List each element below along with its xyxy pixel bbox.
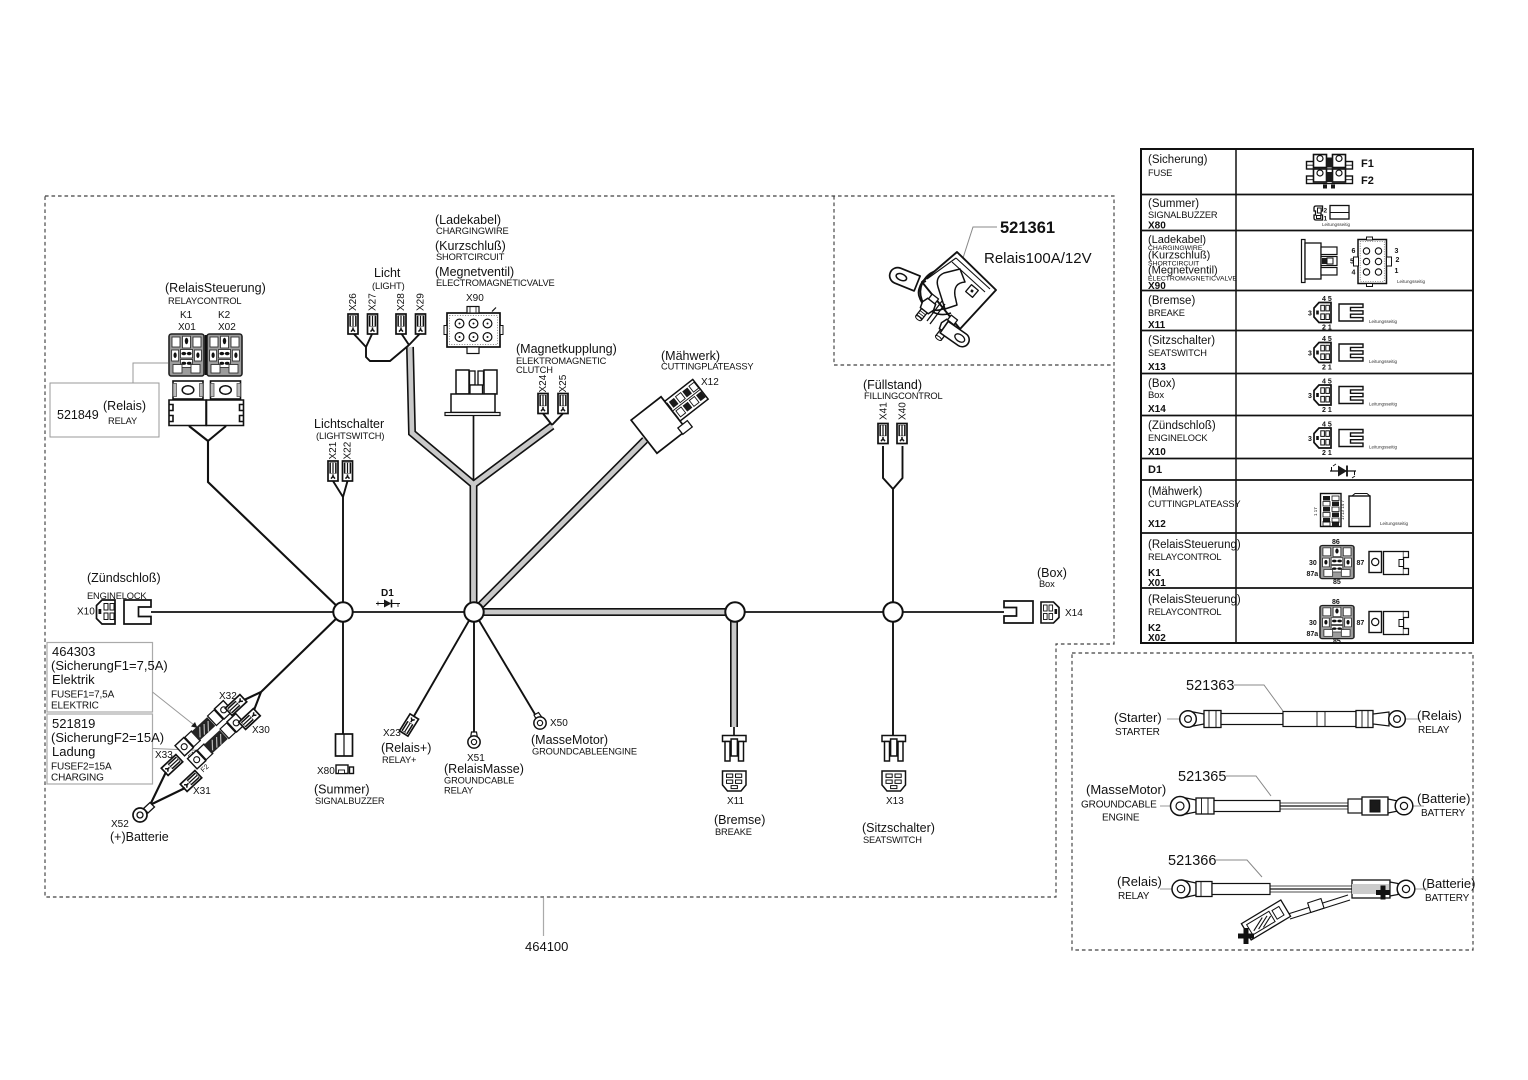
svg-text:2 1: 2 1	[1322, 450, 1332, 457]
svg-text:RELAY: RELAY	[1118, 891, 1150, 902]
svg-text:86: 86	[1332, 599, 1340, 606]
svg-text:X33: X33	[155, 750, 173, 761]
svg-text:(SicherungF2=15A): (SicherungF2=15A)	[51, 730, 164, 745]
svg-text:Leitungsseitig: Leitungsseitig	[1369, 359, 1398, 364]
svg-text:(Zündschloß): (Zündschloß)	[1148, 420, 1216, 432]
svg-text:(+)Batterie: (+)Batterie	[110, 830, 169, 844]
svg-text:Leitungsseitig: Leitungsseitig	[1380, 521, 1409, 526]
svg-text:(Bremse): (Bremse)	[714, 813, 765, 827]
svg-text:ENGINE: ENGINE	[1102, 813, 1140, 824]
svg-text:BATTERY: BATTERY	[1425, 893, 1470, 904]
svg-text:Lichtschalter: Lichtschalter	[314, 417, 384, 431]
svg-text:CHARGINGWIRE: CHARGINGWIRE	[436, 226, 509, 236]
svg-text:Relais100A/12V: Relais100A/12V	[984, 250, 1092, 267]
svg-text:(Sitzschalter): (Sitzschalter)	[862, 821, 935, 835]
svg-text:3: 3	[1308, 351, 1312, 358]
svg-text:87a: 87a	[1307, 571, 1319, 578]
svg-text:FUSE: FUSE	[1148, 168, 1172, 178]
svg-text:4 5: 4 5	[1322, 422, 1332, 429]
svg-text:CHARGING: CHARGING	[51, 773, 104, 784]
svg-text:86: 86	[1332, 539, 1340, 546]
svg-text:X80: X80	[1148, 221, 1166, 232]
svg-text:X02: X02	[218, 322, 236, 333]
svg-text:RELAYCONTROL: RELAYCONTROL	[1148, 607, 1221, 617]
svg-text:4 5: 4 5	[1322, 336, 1332, 343]
svg-text:X14: X14	[1148, 404, 1166, 415]
svg-text:Leitungsseitig: Leitungsseitig	[1369, 445, 1398, 450]
svg-text:SEATSWITCH: SEATSWITCH	[1148, 348, 1207, 358]
svg-text:SIGNALBUZZER: SIGNALBUZZER	[1148, 210, 1218, 220]
svg-text:(Bremse): (Bremse)	[1148, 295, 1195, 307]
svg-text:GROUNDCABLE: GROUNDCABLE	[1081, 800, 1157, 811]
svg-text:Leitungsseitig: Leitungsseitig	[1397, 279, 1426, 284]
svg-text:X80: X80	[317, 766, 335, 777]
svg-text:521363: 521363	[1186, 678, 1234, 694]
svg-text:(Starter): (Starter)	[1114, 710, 1162, 725]
svg-text:RELAYCONTROL: RELAYCONTROL	[168, 296, 241, 306]
svg-text:(Kurzschluß): (Kurzschluß)	[435, 239, 506, 253]
svg-text:30: 30	[1309, 560, 1317, 567]
svg-text:BATTERY: BATTERY	[1421, 808, 1466, 819]
svg-text:X29: X29	[416, 293, 427, 311]
svg-text:(Megnetventil): (Megnetventil)	[435, 265, 514, 279]
svg-text:BREAKE: BREAKE	[1148, 308, 1185, 318]
svg-text:87a: 87a	[1307, 631, 1319, 638]
svg-text:3: 3	[1308, 393, 1312, 400]
svg-text:D1: D1	[1148, 464, 1162, 476]
svg-text:F2: F2	[1361, 175, 1374, 187]
svg-text:X31: X31	[193, 786, 211, 797]
svg-text:K2: K2	[218, 310, 231, 321]
svg-text:2: 2	[1324, 208, 1328, 215]
svg-text:X13: X13	[1148, 362, 1166, 373]
svg-text:X12: X12	[701, 377, 719, 388]
svg-text:X12: X12	[1148, 519, 1166, 530]
svg-text:(LIGHT): (LIGHT)	[372, 281, 405, 291]
svg-text:464303: 464303	[52, 644, 95, 659]
svg-text:ELECTROMAGNETICVALVE: ELECTROMAGNETICVALVE	[436, 278, 555, 288]
svg-text:(Mähwerk): (Mähwerk)	[1148, 486, 1202, 498]
svg-text:(RelaisSteuerung): (RelaisSteuerung)	[1148, 594, 1241, 606]
svg-text:ELEKTRIC: ELEKTRIC	[51, 701, 99, 712]
svg-text:(RelaisSteuerung): (RelaisSteuerung)	[165, 281, 266, 295]
svg-text:(Relais): (Relais)	[1417, 708, 1462, 723]
svg-text:Leitungsseitig: Leitungsseitig	[1369, 402, 1398, 407]
svg-text:2 1: 2 1	[1322, 407, 1332, 414]
svg-text:87: 87	[1357, 560, 1365, 567]
svg-text:(Relais+): (Relais+)	[381, 741, 431, 755]
svg-text:X40: X40	[898, 402, 909, 420]
svg-text:(Relais): (Relais)	[1117, 874, 1162, 889]
svg-text:RELAY: RELAY	[1418, 725, 1450, 736]
svg-text:(Zündschloß): (Zündschloß)	[87, 571, 161, 585]
svg-text:Box: Box	[1039, 579, 1055, 589]
svg-text:FUSEF1=7,5A: FUSEF1=7,5A	[51, 690, 115, 701]
svg-text:X10: X10	[1148, 447, 1166, 458]
svg-text:(Sitzschalter): (Sitzschalter)	[1148, 335, 1215, 347]
svg-text:RELAY+: RELAY+	[382, 755, 416, 765]
svg-text:(Batterie): (Batterie)	[1422, 876, 1475, 891]
svg-text:2 1: 2 1	[1322, 325, 1332, 332]
svg-text:1 17: 1 17	[1313, 507, 1318, 516]
svg-text:X24: X24	[538, 374, 549, 392]
svg-text:X14: X14	[1065, 608, 1083, 619]
svg-text:D1: D1	[381, 588, 394, 599]
svg-text:(Box): (Box)	[1037, 566, 1067, 580]
svg-text:Leitungsseitig: Leitungsseitig	[1369, 319, 1398, 324]
svg-text:(Magnetkupplung): (Magnetkupplung)	[516, 342, 617, 356]
svg-text:Leitungsseitig: Leitungsseitig	[1322, 222, 1351, 227]
svg-text:X26: X26	[348, 293, 359, 311]
svg-text:464100: 464100	[525, 939, 568, 954]
svg-text:(RelaisSteuerung): (RelaisSteuerung)	[1148, 539, 1241, 551]
svg-text:GROUNDCABLE: GROUNDCABLE	[444, 776, 514, 786]
svg-text:Elektrik: Elektrik	[52, 672, 95, 687]
svg-text:SEATSWITCH: SEATSWITCH	[863, 835, 922, 845]
svg-text:SHORTCIRCUIT: SHORTCIRCUIT	[436, 252, 505, 262]
svg-text:521365: 521365	[1178, 769, 1226, 785]
svg-text:CUTTINGPLATEASSY: CUTTINGPLATEASSY	[1148, 499, 1240, 509]
svg-text:(MasseMotor): (MasseMotor)	[531, 733, 608, 747]
svg-text:X27: X27	[368, 293, 379, 311]
svg-text:Box: Box	[1148, 390, 1164, 401]
svg-text:X02: X02	[1148, 633, 1166, 644]
svg-text:ENGINELOCK: ENGINELOCK	[1148, 433, 1208, 443]
svg-text:521366: 521366	[1168, 853, 1216, 869]
svg-text:521361: 521361	[1000, 219, 1055, 237]
svg-text:RELAY: RELAY	[108, 416, 137, 426]
svg-text:85: 85	[1333, 639, 1341, 646]
svg-text:FILLINGCONTROL: FILLINGCONTROL	[864, 391, 943, 401]
svg-text:CUTTINGPLATEASSY: CUTTINGPLATEASSY	[661, 362, 753, 372]
svg-text:CLUTCH: CLUTCH	[516, 365, 553, 375]
svg-text:(Füllstand): (Füllstand)	[863, 378, 922, 392]
svg-text:85: 85	[1333, 579, 1341, 586]
svg-text:2: 2	[1396, 257, 1400, 264]
svg-text:X32: X32	[219, 691, 237, 702]
svg-text:521849: 521849	[57, 408, 99, 422]
svg-text:X28: X28	[396, 293, 407, 311]
svg-text:X25: X25	[558, 374, 569, 392]
svg-text:4 5: 4 5	[1322, 296, 1332, 303]
svg-text:4 5: 4 5	[1322, 379, 1332, 386]
svg-text:X01: X01	[178, 322, 196, 333]
svg-text:X21: X21	[328, 441, 339, 459]
svg-text:1: 1	[1395, 268, 1399, 275]
svg-text:(Summer): (Summer)	[1148, 198, 1199, 210]
svg-text:(Batterie): (Batterie)	[1417, 791, 1470, 806]
svg-text:87: 87	[1357, 620, 1365, 627]
svg-text:(Ladekabel): (Ladekabel)	[435, 213, 501, 227]
svg-text:F1: F1	[1361, 158, 1374, 170]
svg-text:30: 30	[1309, 620, 1317, 627]
svg-text:6: 6	[1352, 248, 1356, 255]
svg-text:2 1: 2 1	[1322, 365, 1332, 372]
svg-text:RELAY: RELAY	[444, 786, 473, 796]
svg-text:SIGNALBUZZER: SIGNALBUZZER	[315, 796, 385, 806]
svg-text:(SicherungF1=7,5A): (SicherungF1=7,5A)	[51, 658, 168, 673]
svg-text:(Relais): (Relais)	[103, 399, 146, 413]
svg-text:X10: X10	[77, 607, 95, 618]
svg-text:(MasseMotor): (MasseMotor)	[1086, 782, 1166, 797]
svg-text:3: 3	[1308, 311, 1312, 318]
svg-text:FUSEF2=15A: FUSEF2=15A	[51, 762, 112, 773]
svg-text:X90: X90	[466, 293, 484, 304]
svg-text:Ladung: Ladung	[52, 744, 95, 759]
svg-text:3: 3	[1308, 436, 1312, 443]
svg-text:X90: X90	[1148, 281, 1166, 292]
svg-text:X11: X11	[727, 796, 744, 807]
svg-text:521819: 521819	[52, 716, 95, 731]
svg-text:X52: X52	[111, 819, 129, 830]
svg-text:X23: X23	[383, 728, 401, 739]
svg-text:GROUNDCABLEENGINE: GROUNDCABLEENGINE	[532, 747, 637, 757]
svg-text:3: 3	[1395, 248, 1399, 255]
svg-text:X22: X22	[343, 441, 354, 459]
svg-text:(RelaisMasse): (RelaisMasse)	[444, 762, 524, 776]
svg-text:RELAYCONTROL: RELAYCONTROL	[1148, 552, 1221, 562]
svg-text:4: 4	[1352, 270, 1356, 277]
svg-text:X50: X50	[550, 718, 568, 729]
svg-text:BREAKE: BREAKE	[715, 827, 752, 837]
svg-text:(Summer): (Summer)	[314, 783, 370, 797]
svg-text:5: 5	[1350, 259, 1354, 266]
svg-text:(Sicherung): (Sicherung)	[1148, 154, 1208, 166]
svg-text:X41: X41	[879, 402, 890, 420]
svg-text:X11: X11	[1148, 320, 1166, 331]
svg-text:1713 14 7: 1713 14 7	[1340, 499, 1345, 520]
svg-text:Licht: Licht	[374, 266, 401, 280]
svg-text:X30: X30	[252, 725, 270, 736]
svg-text:STARTER: STARTER	[1115, 727, 1160, 738]
svg-text:X01: X01	[1148, 578, 1166, 589]
svg-text:(Box): (Box)	[1148, 378, 1176, 390]
svg-text:K1: K1	[180, 310, 193, 321]
svg-text:X13: X13	[886, 796, 904, 807]
svg-text:(LIGHTSWITCH): (LIGHTSWITCH)	[316, 431, 384, 441]
